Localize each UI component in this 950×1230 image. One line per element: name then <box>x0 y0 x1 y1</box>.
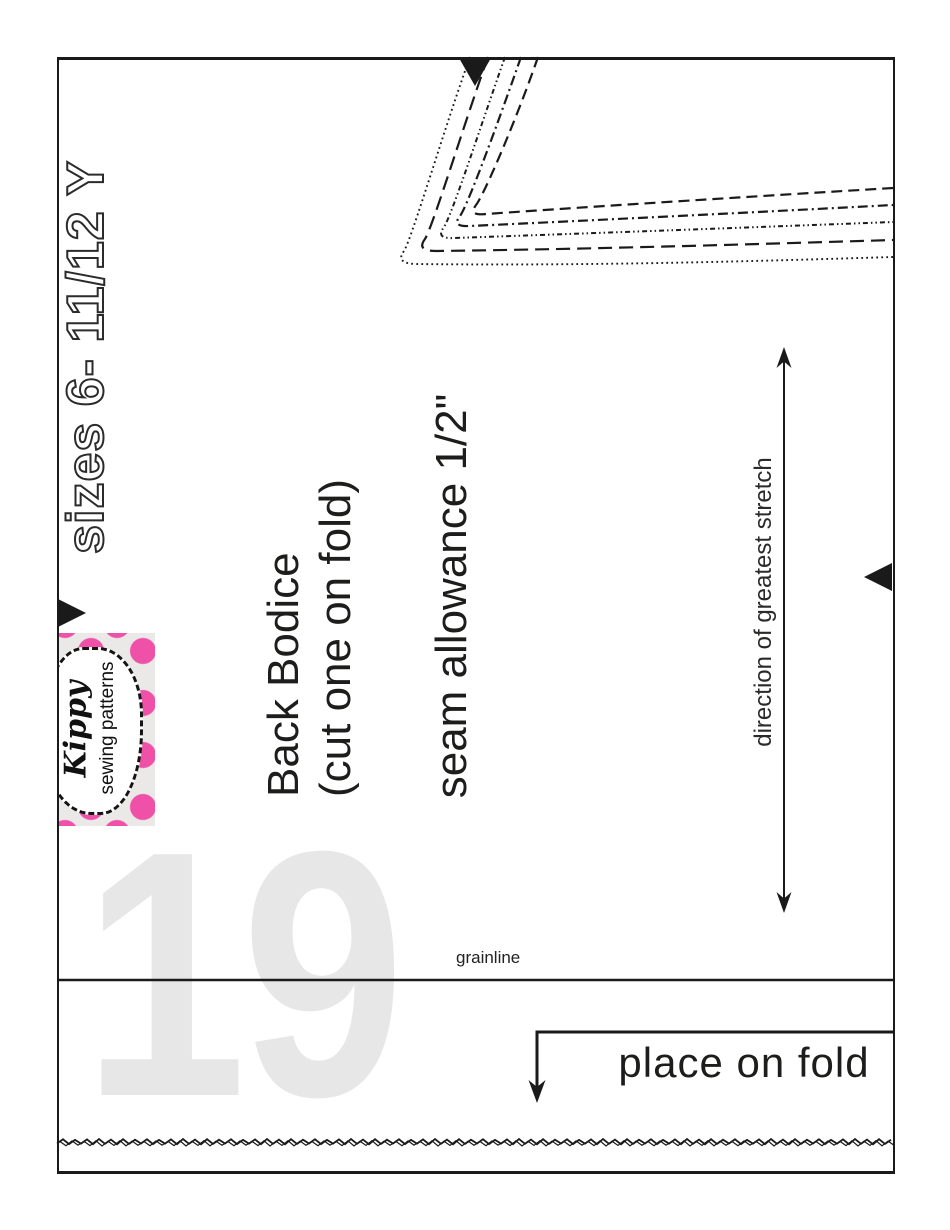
logo-subtitle: sewing patterns <box>97 661 119 794</box>
notch-triangle-left <box>58 599 86 627</box>
logo-script-text: Kippy <box>59 681 94 778</box>
zigzag-stitch-line <box>57 1139 891 1144</box>
size-cut-lines <box>401 57 893 264</box>
place-on-fold-arrow <box>529 1032 895 1103</box>
brand-logo: Kippy sewing patterns <box>59 633 155 826</box>
stretch-direction-arrow <box>777 347 792 913</box>
pattern-linework <box>0 0 950 1230</box>
size-cut-line-dash-dot <box>457 57 893 226</box>
sewing-pattern-sheet: 19 sizes 6- 11/ <box>0 0 950 1230</box>
size-cut-line-long-dash <box>422 57 893 251</box>
size-cut-line-dotted <box>401 57 893 264</box>
size-cut-line-dash <box>474 57 893 214</box>
notch-triangle-right <box>864 563 892 591</box>
size-cut-line-dash-dot-dot <box>441 57 893 238</box>
